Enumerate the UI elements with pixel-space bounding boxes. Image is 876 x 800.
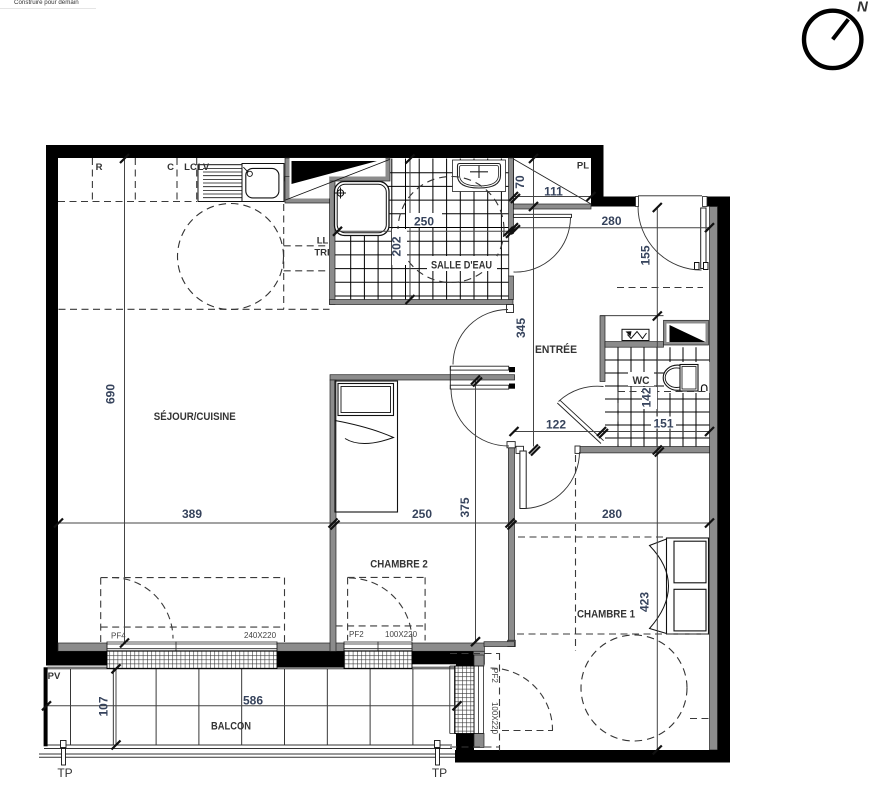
svg-text:202: 202 <box>390 236 404 256</box>
svg-text:240X220: 240X220 <box>244 631 277 640</box>
svg-text:BALCON: BALCON <box>211 721 251 733</box>
svg-text:250: 250 <box>414 215 434 229</box>
svg-text:100X220: 100X220 <box>385 630 418 639</box>
svg-text:280: 280 <box>601 214 621 228</box>
svg-text:100X220: 100X220 <box>490 702 499 735</box>
svg-text:70: 70 <box>513 175 527 189</box>
svg-text:LL: LL <box>317 236 329 247</box>
svg-text:423: 423 <box>638 592 652 612</box>
svg-text:111: 111 <box>544 185 563 199</box>
svg-text:389: 389 <box>182 507 202 521</box>
svg-text:586: 586 <box>243 694 263 708</box>
svg-text:SÉJOUR/CUISINE: SÉJOUR/CUISINE <box>154 410 236 423</box>
svg-text:PF4: PF4 <box>111 632 126 641</box>
svg-text:151: 151 <box>653 417 673 431</box>
svg-text:WC: WC <box>633 375 650 387</box>
svg-text:CHAMBRE 1: CHAMBRE 1 <box>577 609 635 621</box>
svg-text:345: 345 <box>514 318 528 338</box>
svg-text:C: C <box>167 162 174 173</box>
svg-text:SALLE D'EAU: SALLE D'EAU <box>431 260 492 272</box>
svg-text:ENTRÉE: ENTRÉE <box>535 343 577 356</box>
svg-text:CHAMBRE 2: CHAMBRE 2 <box>370 559 428 571</box>
svg-text:Construire pour demain: Construire pour demain <box>14 0 79 6</box>
svg-text:TP: TP <box>432 766 447 780</box>
svg-text:107: 107 <box>97 696 111 716</box>
svg-text:PL: PL <box>577 161 589 172</box>
svg-text:PF2: PF2 <box>490 668 499 683</box>
svg-text:155: 155 <box>639 245 653 265</box>
svg-text:690: 690 <box>104 384 118 404</box>
svg-text:280: 280 <box>602 507 622 521</box>
svg-text:LV: LV <box>198 162 210 173</box>
svg-text:250: 250 <box>412 507 432 521</box>
svg-text:375: 375 <box>458 497 472 517</box>
svg-text:PV: PV <box>48 671 61 682</box>
svg-text:R: R <box>96 162 103 173</box>
svg-text:PF2: PF2 <box>349 630 364 639</box>
svg-text:142: 142 <box>640 387 654 407</box>
svg-text:TRI: TRI <box>314 248 329 259</box>
svg-text:TP: TP <box>57 766 72 780</box>
svg-text:LC: LC <box>184 162 197 173</box>
svg-text:N: N <box>857 0 869 16</box>
svg-text:122: 122 <box>546 418 566 432</box>
